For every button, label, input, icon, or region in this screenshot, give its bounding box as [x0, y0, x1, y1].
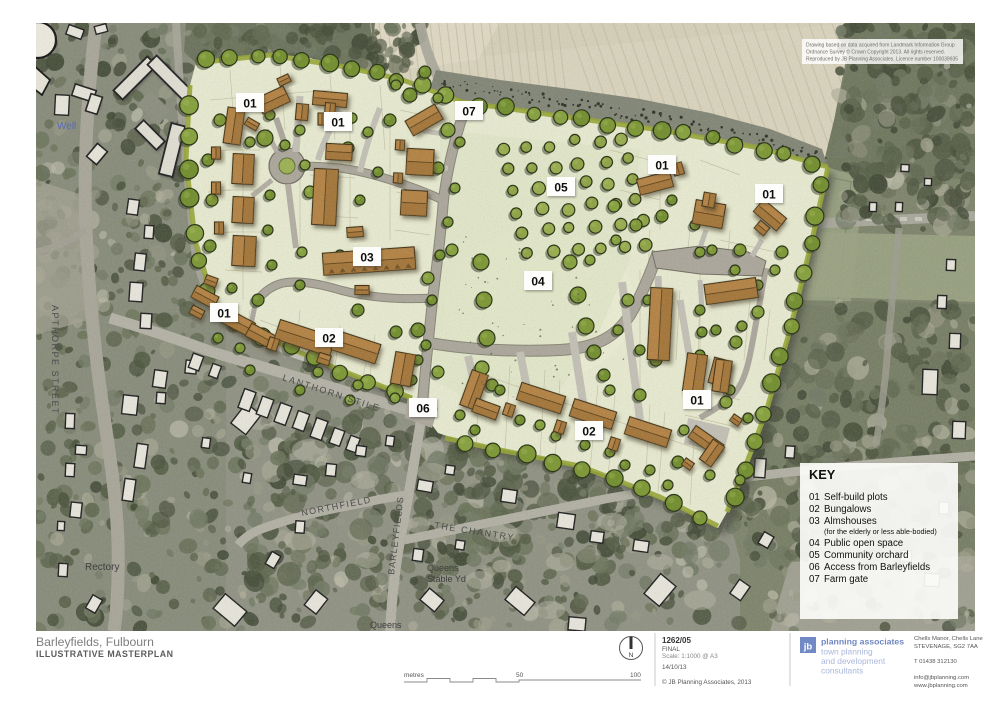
- svg-text:Drawing based on data acquired: Drawing based on data acquired from Land…: [806, 43, 955, 49]
- svg-text:Public open space: Public open space: [824, 538, 903, 549]
- svg-text:02: 02: [809, 504, 820, 515]
- svg-text:06: 06: [416, 402, 430, 416]
- svg-text:Ordnance Survey © Crown Copyri: Ordnance Survey © Crown Copyright 2013. …: [806, 49, 945, 56]
- svg-text:05: 05: [554, 181, 568, 195]
- svg-text:14/10/13: 14/10/13: [662, 664, 687, 671]
- svg-text:Farm gate: Farm gate: [824, 574, 868, 585]
- svg-text:06: 06: [809, 562, 820, 573]
- svg-text:Queens: Queens: [427, 563, 459, 573]
- svg-text:© JB Planning Associates, 2013: © JB Planning Associates, 2013: [662, 678, 752, 686]
- svg-text:01: 01: [762, 188, 776, 202]
- svg-text:01: 01: [809, 492, 820, 503]
- svg-text:Well: Well: [57, 121, 76, 132]
- svg-text:01: 01: [690, 394, 704, 408]
- svg-text:info@jbplanning.com: info@jbplanning.com: [914, 675, 969, 681]
- svg-text:T 01438 312130: T 01438 312130: [914, 659, 958, 665]
- svg-text:Queens: Queens: [370, 620, 402, 630]
- svg-text:Chells Manor, Chells Lane: Chells Manor, Chells Lane: [914, 636, 983, 642]
- svg-text:www.jbplanning.com: www.jbplanning.com: [913, 683, 968, 689]
- svg-text:04: 04: [531, 275, 545, 289]
- svg-text:Rectory: Rectory: [85, 562, 119, 573]
- svg-text:(for the elderly or less able-: (for the elderly or less able-bodied): [824, 527, 937, 536]
- svg-text:Reproduced by JB Planning Asso: Reproduced by JB Planning Associates. Li…: [806, 57, 958, 63]
- svg-text:Bungalows: Bungalows: [824, 504, 872, 515]
- svg-text:jb: jb: [803, 642, 813, 653]
- svg-text:consultants: consultants: [821, 666, 863, 676]
- svg-text:02: 02: [582, 425, 596, 439]
- svg-text:03: 03: [360, 251, 374, 265]
- svg-text:05: 05: [809, 550, 820, 561]
- svg-text:Community orchard: Community orchard: [824, 550, 909, 561]
- svg-text:ILLUSTRATIVE MASTERPLAN: ILLUSTRATIVE MASTERPLAN: [36, 649, 173, 659]
- svg-text:01: 01: [655, 159, 669, 173]
- svg-text:KEY: KEY: [809, 467, 836, 482]
- svg-text:01: 01: [217, 307, 231, 321]
- svg-text:100: 100: [630, 672, 641, 679]
- svg-text:STEVENAGE, SG2 7AA: STEVENAGE, SG2 7AA: [914, 644, 978, 650]
- svg-text:and development: and development: [821, 656, 886, 666]
- svg-text:02: 02: [322, 332, 336, 346]
- svg-text:Almshouses: Almshouses: [824, 516, 877, 527]
- svg-text:metres: metres: [404, 672, 425, 679]
- svg-text:Access from Barleyfields: Access from Barleyfields: [824, 562, 930, 573]
- svg-text:50: 50: [516, 672, 524, 679]
- svg-text:FINAL: FINAL: [662, 646, 680, 653]
- svg-text:planning associates: planning associates: [821, 637, 904, 647]
- svg-text:03: 03: [809, 516, 820, 527]
- svg-text:Scale: 1:1000 @ A3: Scale: 1:1000 @ A3: [662, 653, 718, 660]
- svg-text:town planning: town planning: [821, 647, 873, 657]
- svg-text:04: 04: [809, 538, 820, 549]
- svg-text:Stable Yd: Stable Yd: [427, 574, 466, 584]
- svg-text:07: 07: [462, 105, 476, 119]
- svg-text:N: N: [629, 652, 634, 659]
- svg-text:Self-build plots: Self-build plots: [824, 492, 888, 503]
- svg-text:1262/05: 1262/05: [662, 636, 691, 645]
- svg-text:07: 07: [809, 574, 820, 585]
- svg-text:Barleyfields, Fulbourn: Barleyfields, Fulbourn: [36, 635, 154, 649]
- svg-text:01: 01: [331, 116, 345, 130]
- svg-text:01: 01: [243, 97, 257, 111]
- svg-text:APTHORPE STREET: APTHORPE STREET: [50, 305, 60, 415]
